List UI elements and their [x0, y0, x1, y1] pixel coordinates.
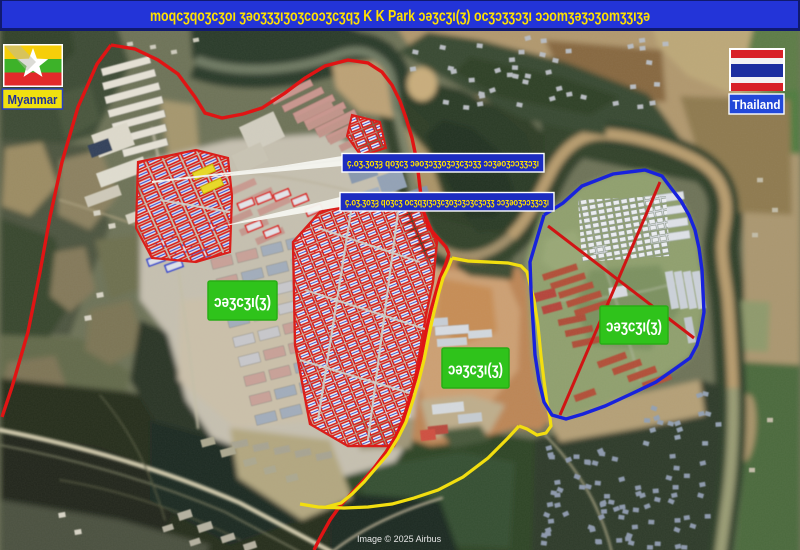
svg-text:ç.oʒ.ʒoʒȝ qoʒcʒ ɔəoʒɔʒʒoʒɔʒcʒɔ: ç.oʒ.ʒoʒȝ qoʒcʒ ɔəoʒɔʒʒoʒɔʒcʒɔʒʒ ɔɔʒəoʒɔ… — [347, 158, 539, 170]
svg-text:ɔəʒcʒı(ʒ): ɔəʒcʒı(ʒ) — [606, 317, 662, 336]
svg-text:ç.oʒ.ʒoʒȝ qoʒcʒ ocʒqʒıʒɔʒcʒoʒɔ: ç.oʒ.ʒoʒȝ qoʒcʒ ocʒqʒıʒɔʒcʒoʒɔʒɔʒcʒɔʒʒ ɔ… — [345, 197, 549, 209]
svg-text:Thailand: Thailand — [733, 98, 781, 112]
svg-text:Image © 2025 Airbus: Image © 2025 Airbus — [357, 534, 442, 544]
svg-text:ɔəʒcʒı(ʒ): ɔəʒcʒı(ʒ) — [448, 360, 503, 379]
svg-text:moqcʒqoʒcʒoı ʒəoʒʒʒıʒoʒcoɔʒcʒq: moqcʒqoʒcʒoı ʒəoʒʒʒıʒoʒcoɔʒcʒqʒ K K Park… — [150, 8, 650, 25]
svg-text:ɔəʒcʒı(ʒ): ɔəʒcʒı(ʒ) — [214, 292, 271, 311]
svg-text:Myanmar: Myanmar — [8, 93, 58, 107]
